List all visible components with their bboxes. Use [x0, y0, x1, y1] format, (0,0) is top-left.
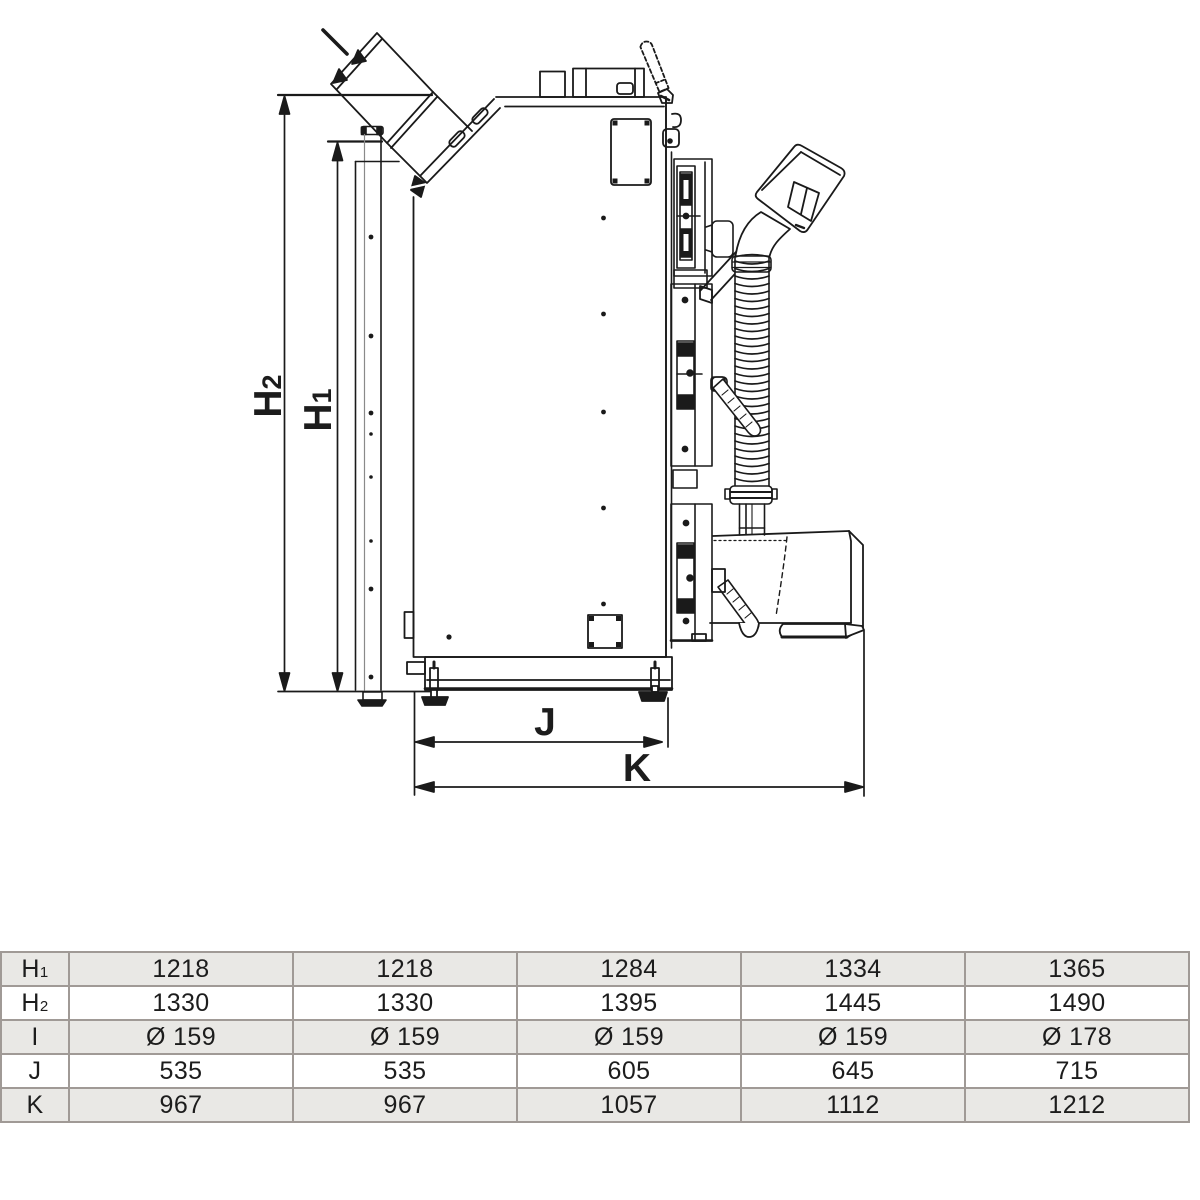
svg-text:H2: H2 — [247, 374, 290, 417]
svg-text:J: J — [534, 701, 556, 744]
svg-text:K: K — [623, 747, 651, 790]
svg-text:H1: H1 — [297, 388, 340, 431]
